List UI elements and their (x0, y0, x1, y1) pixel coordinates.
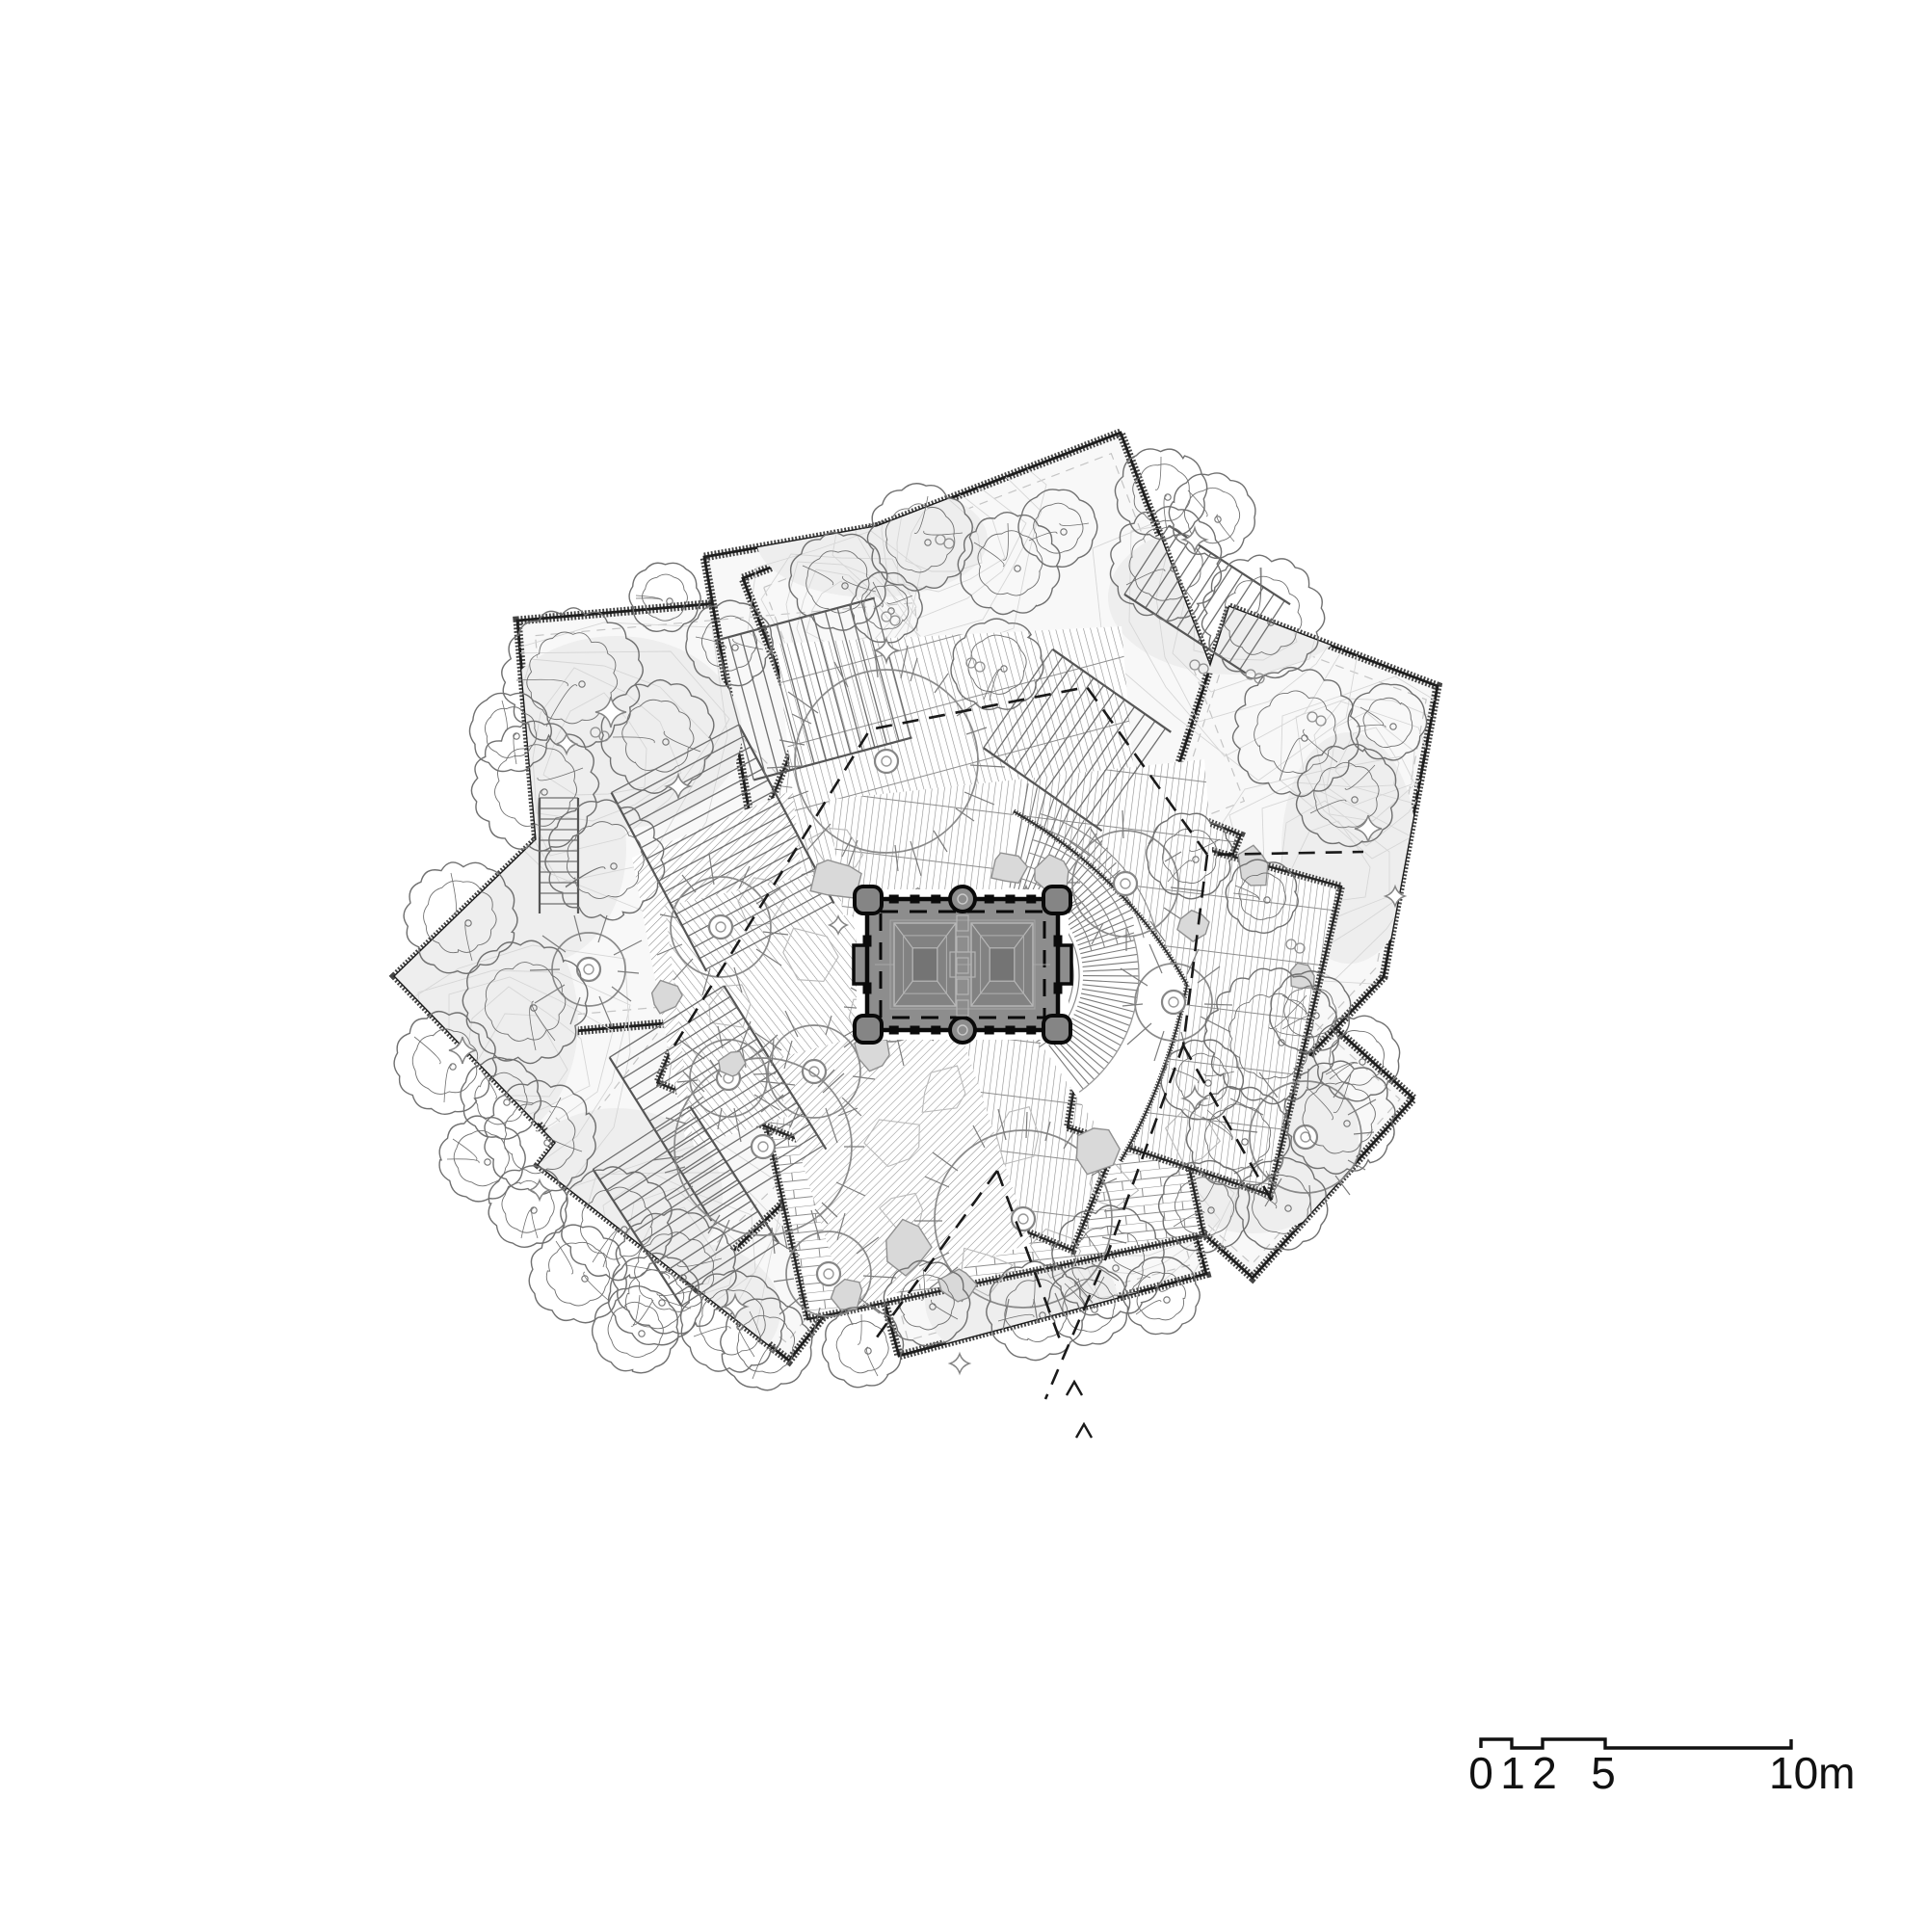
svg-text:1: 1 (1500, 1748, 1525, 1798)
svg-text:10m: 10m (1769, 1748, 1855, 1798)
svg-text:5: 5 (1591, 1748, 1616, 1798)
svg-text:2: 2 (1532, 1748, 1557, 1798)
svg-text:0: 0 (1468, 1748, 1493, 1798)
